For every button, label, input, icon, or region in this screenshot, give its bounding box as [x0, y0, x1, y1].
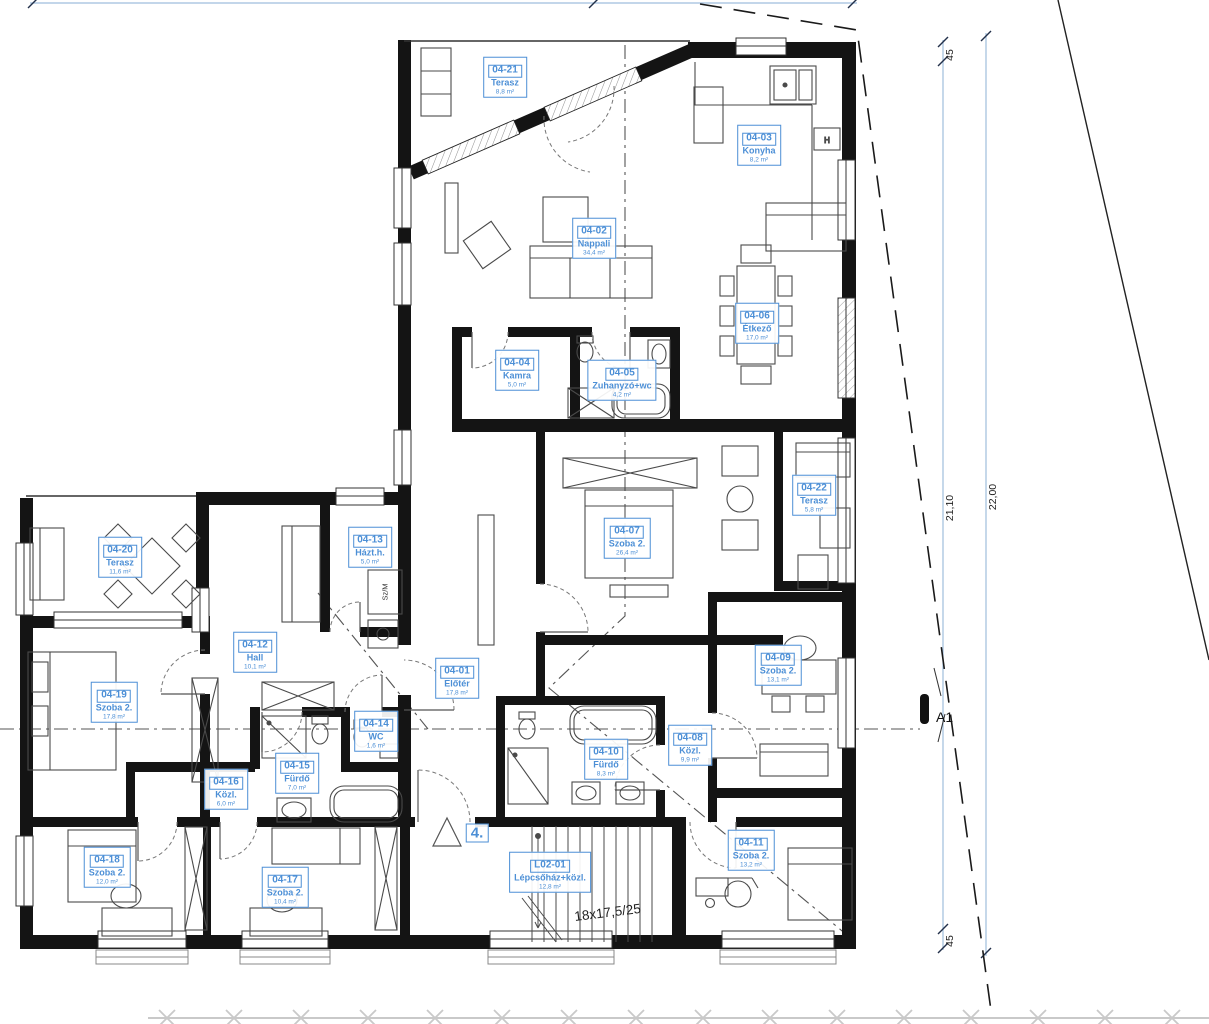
- walls: [20, 40, 856, 949]
- door-swings: [138, 86, 757, 868]
- floor-number-label: 4.: [466, 824, 489, 843]
- neighbour-boundary-line: [1058, 0, 1209, 660]
- room-label-04-17: 04-17Szoba 2.10,4 m²: [262, 867, 309, 908]
- room-label-04-19: 04-19Szoba 2.17,8 m²: [91, 682, 138, 723]
- fence-line: [148, 1010, 1209, 1024]
- section-marker-a1: A1: [920, 668, 953, 742]
- room-label-L02-01: L02-01Lépcsőház+közl.12,8 m²: [509, 852, 591, 893]
- room-label-04-10: 04-10Fürdő8,3 m²: [584, 739, 628, 780]
- room-label-04-18: 04-18Szoba 2.12,0 m²: [84, 847, 131, 888]
- room-label-04-20: 04-20Terasz11,6 m²: [98, 537, 142, 578]
- room-label-04-06: 04-06Étkező17,0 m²: [735, 303, 779, 344]
- furniture-nappali: [445, 183, 846, 298]
- furniture: H: [28, 48, 852, 936]
- dim-wall-top: 45: [944, 49, 956, 61]
- room-label-04-05: 04-05Zuhanyzó+wc4,2 m²: [587, 360, 656, 401]
- room-label-04-07: 04-07Szoba 2.26,4 m²: [604, 518, 651, 559]
- room-label-04-12: 04-12Hall10,1 m²: [233, 632, 277, 673]
- wheelchair-icon: [696, 878, 758, 908]
- room-label-04-03: 04-03Konyha8,2 m²: [737, 125, 781, 166]
- fixtures-furdo-10: [508, 706, 656, 804]
- floor-plan-drawing: 45 21,10 22,00 45: [0, 0, 1209, 1024]
- room-label-04-02: 04-02Nappali34,4 m²: [572, 218, 616, 259]
- room-label-04-22: 04-22Terasz5,8 m²: [792, 475, 836, 516]
- floor-plan-canvas: 45 21,10 22,00 45: [0, 0, 1209, 1024]
- room-label-04-08: 04-08Közl.9,9 m²: [668, 725, 712, 766]
- section-marker-label: A1: [936, 709, 953, 725]
- dim-inner-height: 21,10: [944, 495, 956, 521]
- room-label-04-16: 04-16Közl.6,0 m²: [204, 769, 248, 810]
- kitchen-hood-symbol: H: [824, 136, 830, 145]
- room-label-04-14: 04-14WC1,6 m²: [354, 711, 398, 752]
- room-label-04-11: 04-11Szoba 2.13,2 m²: [728, 830, 775, 871]
- furniture-szoba-07: [563, 446, 758, 597]
- furniture-eloter-closet: [478, 515, 494, 645]
- floor-number-triangle: [433, 818, 461, 846]
- furniture-terasz-21: [421, 48, 451, 116]
- dim-outer-height: 22,00: [987, 484, 999, 510]
- room-label-04-09: 04-09Szoba 2.13,1 m²: [755, 645, 802, 686]
- window-sills: [96, 950, 836, 964]
- room-label-04-13: 04-13Házt.h.5,0 m²: [348, 527, 392, 568]
- stair-spec-text: 18x17,5/25: [574, 901, 642, 924]
- dim-wall-bottom: 45: [944, 935, 956, 947]
- windows: [16, 38, 855, 964]
- dimension-texts: 45 21,10 22,00 45: [944, 49, 999, 947]
- room-label-04-15: 04-15Fürdő7,0 m²: [275, 753, 319, 794]
- room-label-04-04: 04-04Kamra5,0 m²: [495, 350, 539, 391]
- room-label-04-01: 04-01Előtér17,8 m²: [435, 658, 479, 699]
- washing-machine-label: Sz/M: [381, 583, 390, 600]
- room-label-04-21: 04-21Terasz8,8 m²: [483, 57, 527, 98]
